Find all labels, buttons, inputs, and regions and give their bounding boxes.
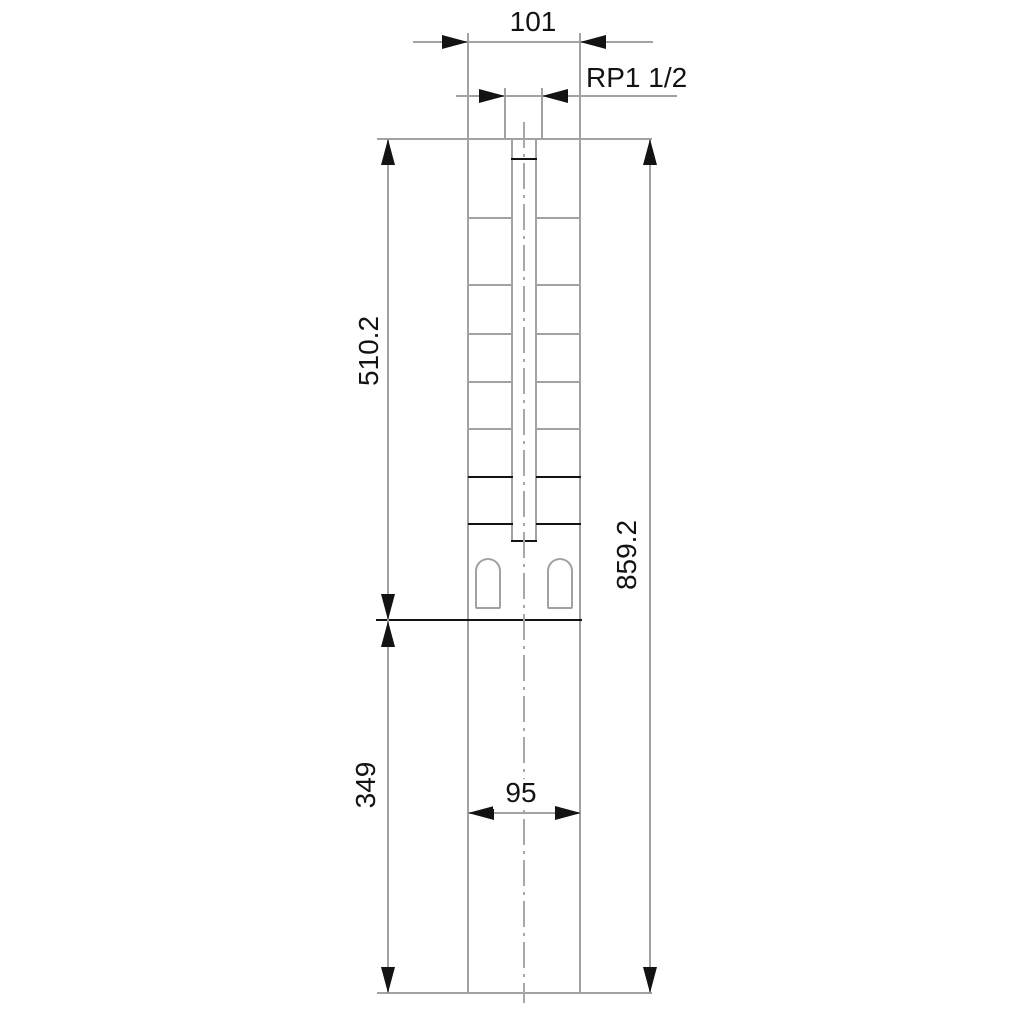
chamber-line (536, 428, 581, 430)
arrowhead (381, 967, 395, 993)
chamber-line (468, 428, 513, 430)
section-junction-line (376, 619, 582, 621)
chamber-line (536, 333, 581, 335)
arrowhead (468, 806, 494, 820)
dim-label-overall-length: 859.2 (612, 495, 642, 615)
arrowhead (381, 621, 395, 647)
chamber-line-dark (536, 523, 581, 525)
riser-pipe-right-edge (535, 138, 537, 542)
riser-pipe-left-edge (511, 138, 513, 542)
chamber-line (468, 217, 513, 219)
arrowhead (580, 35, 606, 49)
chamber-line-dark (468, 523, 513, 525)
dim-label-lower-length: 349 (352, 740, 380, 830)
center-line (523, 122, 525, 1003)
chamber-line (468, 381, 513, 383)
drawing-canvas: 101 RP1 1/2 510.2 859.2 349 95 (0, 0, 1024, 1024)
bottom-extension-line (377, 992, 652, 994)
dim-label-thread: RP1 1/2 (586, 64, 687, 92)
chamber-line (536, 284, 581, 286)
chamber-line (536, 217, 581, 219)
dim-label-top-width: 101 (488, 8, 578, 36)
top-extension-line (377, 138, 652, 140)
arrowhead (442, 35, 468, 49)
arrowhead (643, 967, 657, 993)
cable-guard-slot-left (475, 558, 501, 609)
arrowhead (542, 89, 568, 103)
chamber-line (536, 381, 581, 383)
dim-label-lower-width: 95 (493, 779, 549, 809)
arrowhead (381, 594, 395, 620)
cable-guard-slot-right (547, 558, 573, 609)
dim-line-left-vertical (387, 138, 389, 994)
chamber-line-dark (536, 476, 581, 478)
body-left-edge (467, 138, 469, 994)
chamber-line-dark (468, 476, 513, 478)
arrowhead (479, 89, 505, 103)
arrowhead (381, 139, 395, 165)
arrowhead (643, 139, 657, 165)
dim-label-upper-length: 510.2 (354, 291, 384, 411)
chamber-line (468, 284, 513, 286)
arrowhead (555, 806, 581, 820)
chamber-line (468, 333, 513, 335)
dim-line-right-vertical (649, 138, 651, 994)
body-right-edge (579, 138, 581, 994)
